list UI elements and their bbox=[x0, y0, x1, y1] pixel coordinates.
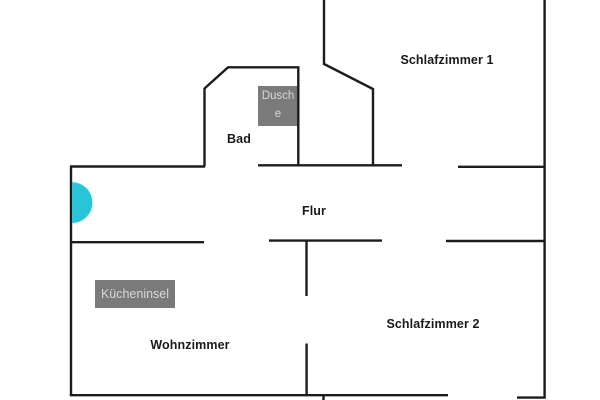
room-label-bad: Bad bbox=[227, 132, 251, 146]
shower-box: Dusche bbox=[258, 86, 299, 126]
wall-bedroom1-left-outline bbox=[324, 0, 373, 167]
kitchen-island-box: Kücheninsel bbox=[95, 280, 175, 308]
door-swing-marker bbox=[72, 182, 92, 223]
room-label-schlafzimmer-1: Schlafzimmer 1 bbox=[400, 53, 493, 67]
room-label-flur: Flur bbox=[302, 204, 326, 218]
room-label-wohnzimmer: Wohnzimmer bbox=[150, 338, 229, 352]
floorplan-walls-svg bbox=[0, 0, 600, 400]
wall-right-with-corner bbox=[517, 0, 545, 398]
floorplan-canvas: Dusche Kücheninsel Schlafzimmer 1 Bad Fl… bbox=[0, 0, 600, 400]
room-label-schlafzimmer-2: Schlafzimmer 2 bbox=[386, 317, 479, 331]
